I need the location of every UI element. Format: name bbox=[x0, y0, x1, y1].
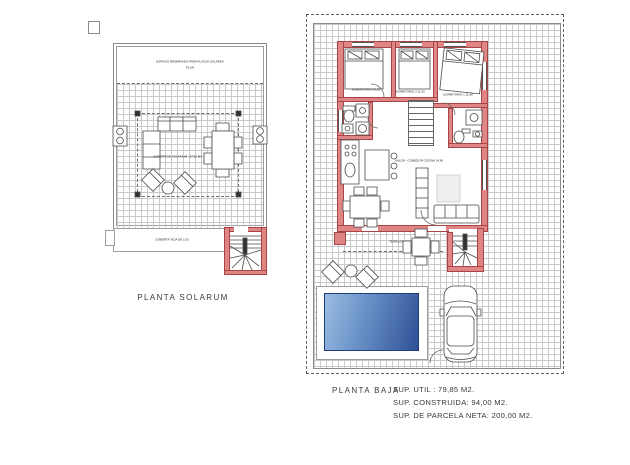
wall-segment bbox=[337, 135, 373, 140]
porch-door-opening bbox=[428, 226, 446, 231]
room-label-bedroom2: DORMITORIO 2 11,05 bbox=[395, 91, 424, 94]
stat-sup-parcela: SUP. DE PARCELA NETA: 200,00 M2. bbox=[393, 411, 533, 420]
window bbox=[400, 42, 422, 47]
solarium-chimney bbox=[88, 21, 100, 34]
wall-segment bbox=[448, 108, 453, 148]
wall-segment bbox=[447, 266, 484, 272]
right-plan-title: PLANTA BAJA bbox=[332, 386, 400, 395]
solarium-grid-top-divider bbox=[117, 83, 263, 84]
wall-segment bbox=[261, 227, 267, 275]
roof-label: CUBIERTA TEJA DE LOS bbox=[155, 239, 189, 242]
wall-segment bbox=[448, 143, 488, 148]
swimming-pool bbox=[324, 293, 419, 351]
wall-segment bbox=[447, 232, 453, 268]
stair-door-opening bbox=[234, 227, 248, 232]
window bbox=[444, 42, 466, 47]
room-label-terrace: TERRAZA bbox=[389, 241, 403, 244]
solarium-area-label: SUPERFICIE SOLARIUM : 37,50 M2. bbox=[153, 156, 202, 159]
room-label-living: SALON - COMEDOR COCINA 24,90 bbox=[395, 160, 443, 163]
solarium-top-note-line1: ESPACIO RESERVADO PARA PLACAS SOLARES bbox=[156, 61, 223, 64]
window bbox=[338, 110, 343, 132]
solarium-roof-ledge bbox=[105, 230, 115, 246]
room-label-bedroom1: DORMITORIO 1 11,60 bbox=[443, 94, 472, 97]
stat-sup-util: SUP. UTIL : 79,85 M2. bbox=[393, 385, 474, 394]
solarium-top-note-line2: PLAN bbox=[186, 67, 194, 70]
window bbox=[482, 160, 487, 190]
window bbox=[482, 62, 487, 90]
porch-edge-line bbox=[343, 251, 443, 252]
wall-segment bbox=[433, 103, 488, 108]
wall-segment bbox=[433, 41, 438, 102]
wall-segment bbox=[224, 270, 267, 275]
interior-staircase bbox=[408, 100, 434, 146]
floor-plan-sheet: ESPACIO RESERVADO PARA PLACAS SOLARES PL… bbox=[0, 0, 630, 465]
room-label-bedroom3: DORMITORIO 3 8,05 bbox=[352, 89, 380, 92]
window bbox=[352, 42, 374, 47]
porch-door-opening bbox=[362, 226, 378, 231]
porch-column bbox=[334, 232, 346, 245]
left-plan-title: PLANTA SOLARUM bbox=[137, 293, 228, 302]
wall-segment bbox=[224, 227, 230, 275]
stat-sup-construida: SUP. CONSTRUIDA: 94,00 M2. bbox=[393, 398, 508, 407]
